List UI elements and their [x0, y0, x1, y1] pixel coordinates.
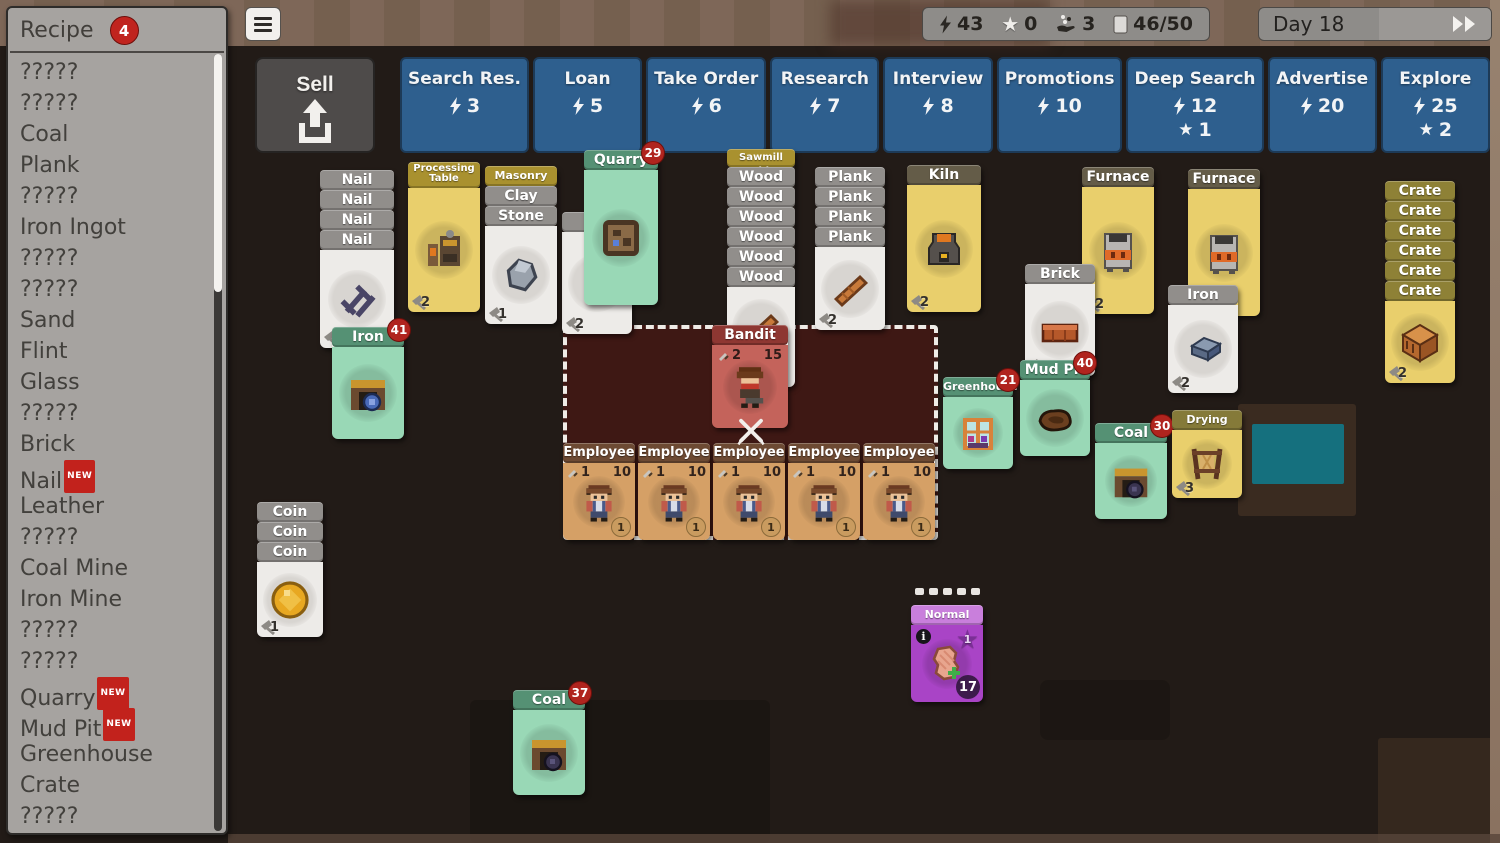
nail-header[interactable]: Nail [320, 230, 394, 250]
count-badge: 37 [568, 681, 592, 705]
order-star-icon: ★1 [956, 627, 979, 653]
employee-body[interactable]: 1 10 1 [788, 463, 860, 540]
recipe-label: ????? [20, 401, 78, 426]
processing-table-body[interactable]: 2 [408, 188, 480, 312]
crate-header[interactable]: Crate [1385, 261, 1455, 281]
plank-header[interactable]: Plank [815, 167, 885, 187]
crate-card-body[interactable]: 2 [1385, 301, 1455, 383]
recipe-panel: Recipe 4 ????? ????? Coal Plank ????? Ir… [6, 6, 228, 835]
employee-header[interactable]: Employee [638, 443, 710, 463]
recipe-label: Leather [20, 494, 104, 519]
wage-coin: 1 [911, 517, 931, 537]
star-status: ★ 0 [1001, 12, 1037, 36]
hp-stat: 10 [763, 465, 781, 480]
greenhouse-icon [953, 408, 1003, 458]
action-label: Take Order [654, 69, 758, 89]
energy-cost: 20 [1300, 95, 1344, 117]
hp-stat: 15 [764, 348, 782, 363]
kiln-body[interactable]: 2 [907, 185, 981, 312]
sell-value: 2 [1388, 366, 1407, 381]
coin-card-body[interactable]: 1 [257, 562, 323, 637]
card-plank-stack[interactable]: Plank Plank Plank Plank 2 [815, 167, 885, 330]
recipe-list-item[interactable]: Crate [20, 770, 226, 801]
hp-stat: 10 [613, 465, 631, 480]
recipe-label: Coal Mine [20, 556, 128, 581]
dagger-icon [642, 467, 654, 479]
card-coin-stack[interactable]: Coin Coin Coin 1 [257, 502, 323, 637]
lightning-bolt-icon [922, 97, 935, 115]
attack-stat: 1 [867, 465, 890, 480]
energy-cost: 6 [691, 95, 722, 117]
action-button[interactable]: Deep Search 12 ★ 1 [1126, 57, 1263, 153]
sell-value: 1 [260, 620, 279, 635]
order-progress-pips [915, 588, 980, 595]
double-arrow-icon [1451, 14, 1479, 34]
card-nail-stack[interactable]: Nail Nail Nail Nail 1 [320, 170, 394, 348]
action-label: Loan [565, 69, 611, 89]
wage-coin: 1 [686, 517, 706, 537]
recipe-list-item[interactable]: Plank [20, 150, 226, 181]
game-screen: Recipe 4 ????? ????? Coal Plank ????? Ir… [0, 0, 1500, 843]
action-button[interactable]: Promotions 10 [997, 57, 1123, 153]
iron-mine-icon [339, 364, 397, 422]
card-iron-ingot[interactable]: Iron Ingot 2 [1168, 285, 1238, 393]
lightning-bolt-icon [939, 15, 952, 34]
recipe-label: Coal [20, 122, 68, 147]
sell-value: 2 [818, 313, 837, 328]
furnace-icon [1195, 224, 1253, 282]
background-monitor [1252, 424, 1344, 484]
hand-with-items-icon [1055, 14, 1077, 34]
card-mud-pit[interactable]: 40 Mud Pit [1020, 360, 1090, 456]
nail-header[interactable]: Nail [320, 170, 394, 190]
crate-header[interactable]: Crate [1385, 181, 1455, 201]
plank-card-body[interactable]: 2 [815, 247, 885, 330]
recipe-list-item[interactable]: Iron Mine [20, 584, 226, 615]
lightning-bolt-icon [449, 97, 462, 115]
action-label: Advertise [1276, 69, 1368, 89]
hp-stat: 10 [913, 465, 931, 480]
recipe-panel-header: Recipe 4 [8, 8, 226, 51]
order-count-badge: 17 [956, 675, 980, 699]
new-badge: NEW [103, 708, 134, 741]
coin-header[interactable]: Coin [257, 542, 323, 562]
wood-header[interactable]: Wood [727, 247, 795, 267]
dagger-icon [717, 467, 729, 479]
plank-header[interactable]: Plank [815, 207, 885, 227]
employee-body[interactable]: 1 10 1 [713, 463, 785, 540]
recipe-label: Sand [20, 308, 75, 333]
hp-stat: 10 [688, 465, 706, 480]
furnace-icon [1089, 222, 1147, 280]
energy-cost: 10 [1037, 95, 1081, 117]
employee-header[interactable]: Employee [863, 443, 935, 463]
lightning-bolt-icon [1037, 97, 1050, 115]
stone-card-body[interactable]: 1 [485, 226, 557, 324]
employee-row: Employee 1 10 1 Employee [563, 443, 935, 540]
iron-ingot-body[interactable]: 2 [1168, 305, 1238, 393]
recipe-list-item[interactable]: ????? [20, 57, 226, 88]
sell-value: 2 [411, 295, 430, 310]
plank-icon [821, 260, 879, 318]
recipe-panel-title: Recipe [20, 18, 94, 43]
furnace-header[interactable]: Furnace [1082, 167, 1154, 187]
action-button[interactable]: Loan 5 [533, 57, 642, 153]
recipe-count-badge: 4 [110, 16, 139, 45]
recipe-list-item[interactable]: Coal [20, 119, 226, 150]
count-badge: 40 [1073, 351, 1097, 375]
employee-header[interactable]: Employee [788, 443, 860, 463]
card-coal-mine[interactable]: 30 Coal Mine [1095, 423, 1167, 519]
plank-header[interactable]: Plank [815, 187, 885, 207]
employee-body[interactable]: 1 10 1 [563, 463, 635, 540]
coal-mine-icon [1105, 455, 1157, 507]
attack-stat: 1 [642, 465, 665, 480]
coal-mine-icon [520, 724, 578, 782]
star-icon: ★ [1419, 122, 1434, 139]
board-edge [1490, 0, 1500, 843]
recipe-list-item[interactable]: ????? [20, 274, 226, 305]
recipe-label: Crate [20, 773, 80, 798]
dagger-icon [867, 467, 879, 479]
drying-rack-header[interactable]: Drying Rack [1172, 410, 1242, 430]
iron-ingot-header[interactable]: Iron Ingot [1168, 285, 1238, 305]
recipe-list-item[interactable]: Glass [20, 367, 226, 398]
star-cost: ★ 2 [1419, 119, 1452, 141]
action-button[interactable]: Take Order 6 [646, 57, 766, 153]
card-employee[interactable]: Employee 1 10 1 [638, 443, 710, 540]
recipe-label: ????? [20, 525, 78, 550]
crate-header[interactable]: Crate [1385, 241, 1455, 261]
recipe-list-item[interactable]: ????? [20, 801, 226, 832]
recipe-label: Brick [20, 432, 75, 457]
action-label: Promotions [1005, 69, 1115, 89]
action-label: Research [781, 69, 869, 89]
sell-value: 2 [1171, 376, 1190, 391]
energy-cost: 25 [1413, 95, 1457, 117]
nail-icon [328, 270, 386, 328]
recipe-list-item[interactable]: Iron Ingot [20, 212, 226, 243]
card-processing-table[interactable]: Processing Table 2 [408, 162, 480, 312]
recipe-label: ????? [20, 246, 78, 271]
crossed-swords-icon [735, 417, 767, 451]
wage-coin: 1 [611, 517, 631, 537]
action-label: Search Res. [408, 69, 521, 89]
recipe-label: ????? [20, 91, 78, 116]
card-masonry-table-stack[interactable]: Masonry Table Clay Stone 1 [485, 166, 557, 324]
furnace-header[interactable]: Furnace [1188, 169, 1260, 189]
action-button[interactable]: Interview 8 [883, 57, 992, 153]
wood-header[interactable]: Wood [727, 267, 795, 287]
card-coal-mine[interactable]: 37 Coal Mine [513, 690, 585, 795]
energy-cost: 12 [1173, 95, 1217, 117]
lightning-bolt-icon [572, 97, 585, 115]
wood-header[interactable]: Wood [727, 207, 795, 227]
recipe-list-item[interactable]: ????? [20, 181, 226, 212]
lightning-bolt-icon [1173, 97, 1186, 115]
recipe-label: ????? [20, 184, 78, 209]
energy-cost: 5 [572, 95, 603, 117]
wood-header[interactable]: Wood [727, 167, 795, 187]
card-employee[interactable]: Employee 1 10 1 [863, 443, 935, 540]
wood-header[interactable]: Wood [727, 187, 795, 207]
crate-header[interactable]: Crate [1385, 281, 1455, 301]
recipe-list-item[interactable]: Mud PitNEW [20, 708, 226, 739]
sell-value: 3 [1175, 481, 1194, 496]
card-bandit[interactable]: Bandit 2 15 [712, 325, 788, 428]
masonry-table-header[interactable]: Masonry Table [485, 166, 557, 186]
lightning-bolt-icon [1300, 97, 1313, 115]
sell-value: 1 [488, 307, 507, 322]
energy-cost: 3 [449, 95, 480, 117]
card-employee[interactable]: Employee 1 10 1 [713, 443, 785, 540]
bandit-body[interactable]: 2 15 [712, 345, 788, 428]
energy-status: 43 [939, 13, 983, 35]
recipe-label: Glass [20, 370, 80, 395]
energy-cost: 7 [809, 95, 840, 117]
employee-body[interactable]: 1 10 1 [863, 463, 935, 540]
star-icon: ★ [1178, 122, 1193, 139]
recipe-label: Plank [20, 153, 80, 178]
action-button[interactable]: Research 7 [770, 57, 879, 153]
coin-icon [263, 573, 317, 627]
star-cost: ★ 1 [1178, 119, 1211, 141]
card-greenhouse[interactable]: 21 Greenhouse [943, 377, 1013, 469]
recipe-label: ????? [20, 804, 78, 829]
energy-cost: 8 [922, 95, 953, 117]
board-edge-bottom [228, 834, 1500, 843]
lightning-bolt-icon [691, 97, 704, 115]
card-count-status: 46/50 [1113, 13, 1193, 35]
attack-stat: 1 [717, 465, 740, 480]
coal-mine-body[interactable] [1095, 443, 1167, 519]
day-indicator: Day 18 [1258, 7, 1492, 41]
bandit-character-icon [723, 360, 777, 414]
recipe-list-item[interactable]: NailNEW [20, 460, 226, 491]
recipe-list-item[interactable]: Brick [20, 429, 226, 460]
recipe-label: ????? [20, 277, 78, 302]
normal-order-header[interactable]: Normal Order [911, 605, 983, 625]
coal-mine-body[interactable] [513, 710, 585, 795]
drying-rack-body[interactable]: 3 [1172, 430, 1242, 498]
sell-label: Sell [263, 73, 367, 97]
recipe-list-item[interactable]: ????? [20, 615, 226, 646]
recipe-list-item[interactable]: Leather [20, 491, 226, 522]
lightning-bolt-icon [809, 97, 822, 115]
nail-header[interactable]: Nail [320, 210, 394, 230]
mud-pit-body[interactable] [1020, 380, 1090, 456]
attack-stat: 1 [792, 465, 815, 480]
crate-header[interactable]: Crate [1385, 221, 1455, 241]
wage-coin: 1 [761, 517, 781, 537]
card-stack-icon [1113, 15, 1128, 34]
sawmill-table-header[interactable]: Sawmill Table [727, 149, 795, 167]
resource-status-bar: 43 ★ 0 3 46/50 [922, 7, 1210, 41]
dagger-icon [792, 467, 804, 479]
wood-header[interactable]: Wood [727, 227, 795, 247]
deals-status: 3 [1055, 13, 1095, 35]
info-circle-icon[interactable]: i [916, 629, 931, 644]
card-quarry[interactable]: 29 Quarry [584, 150, 658, 305]
attack-stat: 1 [567, 465, 590, 480]
processing-table-header[interactable]: Processing Table [408, 162, 480, 188]
dagger-icon [718, 350, 730, 362]
sell-value: 2 [910, 295, 929, 310]
bandit-header[interactable]: Bandit [712, 325, 788, 345]
action-bar: Search Res. 3 Loan 5 Take Order 6 Resear… [400, 57, 1490, 153]
star-icon: ★ [1001, 12, 1019, 36]
recipe-list-item[interactable]: Sand [20, 305, 226, 336]
card-normal-order[interactable]: Normal Order i ★1 17 [911, 605, 983, 702]
brick-header[interactable]: Brick [1025, 264, 1095, 284]
crate-icon [1391, 313, 1449, 371]
sell-value: 2 [565, 317, 584, 332]
recipe-list-item[interactable]: ????? [20, 646, 226, 677]
wage-coin: 1 [836, 517, 856, 537]
recipe-list-item[interactable]: ????? [20, 88, 226, 119]
recipe-label: ????? [20, 60, 78, 85]
recipe-label: Iron Ingot [20, 215, 126, 240]
normal-order-body[interactable]: i ★1 17 [911, 625, 983, 702]
employee-header[interactable]: Employee [563, 443, 635, 463]
lightning-bolt-icon [1413, 97, 1426, 115]
recipe-label: Greenhouse [20, 742, 153, 767]
recipe-label: ????? [20, 649, 78, 674]
new-badge: NEW [64, 460, 95, 493]
upload-arrow-icon [293, 131, 337, 146]
sell-button[interactable]: Sell [255, 57, 375, 153]
dagger-icon [567, 467, 579, 479]
quarry-icon [592, 209, 650, 267]
action-label: Explore [1399, 69, 1471, 89]
iron-ingot-icon [1174, 320, 1232, 378]
crate-header[interactable]: Crate [1385, 201, 1455, 221]
recipe-list-item[interactable]: ????? [20, 398, 226, 429]
day-label: Day 18 [1259, 12, 1379, 36]
hp-stat: 10 [838, 465, 856, 480]
count-badge: 41 [387, 318, 411, 342]
employee-body[interactable]: 1 10 1 [638, 463, 710, 540]
action-button[interactable]: Advertise 20 [1268, 57, 1377, 153]
kiln-icon [915, 220, 973, 278]
hamburger-icon [254, 17, 272, 20]
coin-header[interactable]: Coin [257, 502, 323, 522]
count-badge: 30 [1150, 414, 1174, 438]
card-employee[interactable]: Employee 1 10 1 [563, 443, 635, 540]
card-iron-mine[interactable]: 41 Iron Mine [332, 327, 404, 439]
menu-button[interactable] [245, 7, 281, 41]
card-employee[interactable]: Employee 1 10 1 [788, 443, 860, 540]
scrollbar-thumb[interactable] [214, 54, 222, 292]
card-kiln[interactable]: Kiln 2 [907, 165, 981, 312]
recipe-list-item[interactable]: Coal Mine [20, 553, 226, 584]
card-crate-stack[interactable]: Crate Crate Crate Crate Crate Crate 2 [1385, 181, 1455, 383]
fast-forward-button[interactable] [1379, 8, 1491, 40]
new-badge: NEW [97, 677, 128, 710]
attack-stat: 2 [718, 348, 741, 363]
action-label: Interview [893, 69, 984, 89]
plank-header[interactable]: Plank [815, 227, 885, 247]
scrollbar-track[interactable] [214, 54, 222, 831]
recipe-label: Iron Mine [20, 587, 122, 612]
recipe-list-item[interactable]: QuarryNEW [20, 677, 226, 708]
greenhouse-body[interactable] [943, 397, 1013, 469]
quarry-body[interactable] [584, 170, 658, 305]
brick-icon [1031, 301, 1089, 359]
recipe-list-item[interactable]: ????? [20, 243, 226, 274]
recipe-list: ????? ????? Coal Plank ????? Iron Ingot … [8, 53, 226, 832]
count-badge: 29 [641, 141, 665, 165]
action-label: Deep Search [1134, 69, 1255, 89]
count-badge: 21 [996, 368, 1020, 392]
nail-header[interactable]: Nail [320, 190, 394, 210]
recipe-label: Flint [20, 339, 67, 364]
mud-icon [1026, 389, 1084, 447]
background-furniture [1040, 680, 1170, 740]
iron-mine-body[interactable] [332, 347, 404, 439]
recipe-list-item[interactable]: Greenhouse [20, 739, 226, 770]
clay-header[interactable]: Clay [485, 186, 557, 206]
recipe-list-item[interactable]: ????? [20, 522, 226, 553]
action-button[interactable]: Search Res. 3 [400, 57, 529, 153]
coin-header[interactable]: Coin [257, 522, 323, 542]
action-button[interactable]: Explore 25 ★ 2 [1381, 57, 1490, 153]
stone-header[interactable]: Stone [485, 206, 557, 226]
kiln-header[interactable]: Kiln [907, 165, 981, 185]
recipe-list-item[interactable]: Flint [20, 336, 226, 367]
card-drying-rack[interactable]: Drying Rack 3 [1172, 410, 1242, 498]
recipe-label: ????? [20, 618, 78, 643]
stone-icon [492, 246, 550, 304]
background-table [1378, 738, 1500, 843]
processing-machine-icon [415, 221, 473, 279]
